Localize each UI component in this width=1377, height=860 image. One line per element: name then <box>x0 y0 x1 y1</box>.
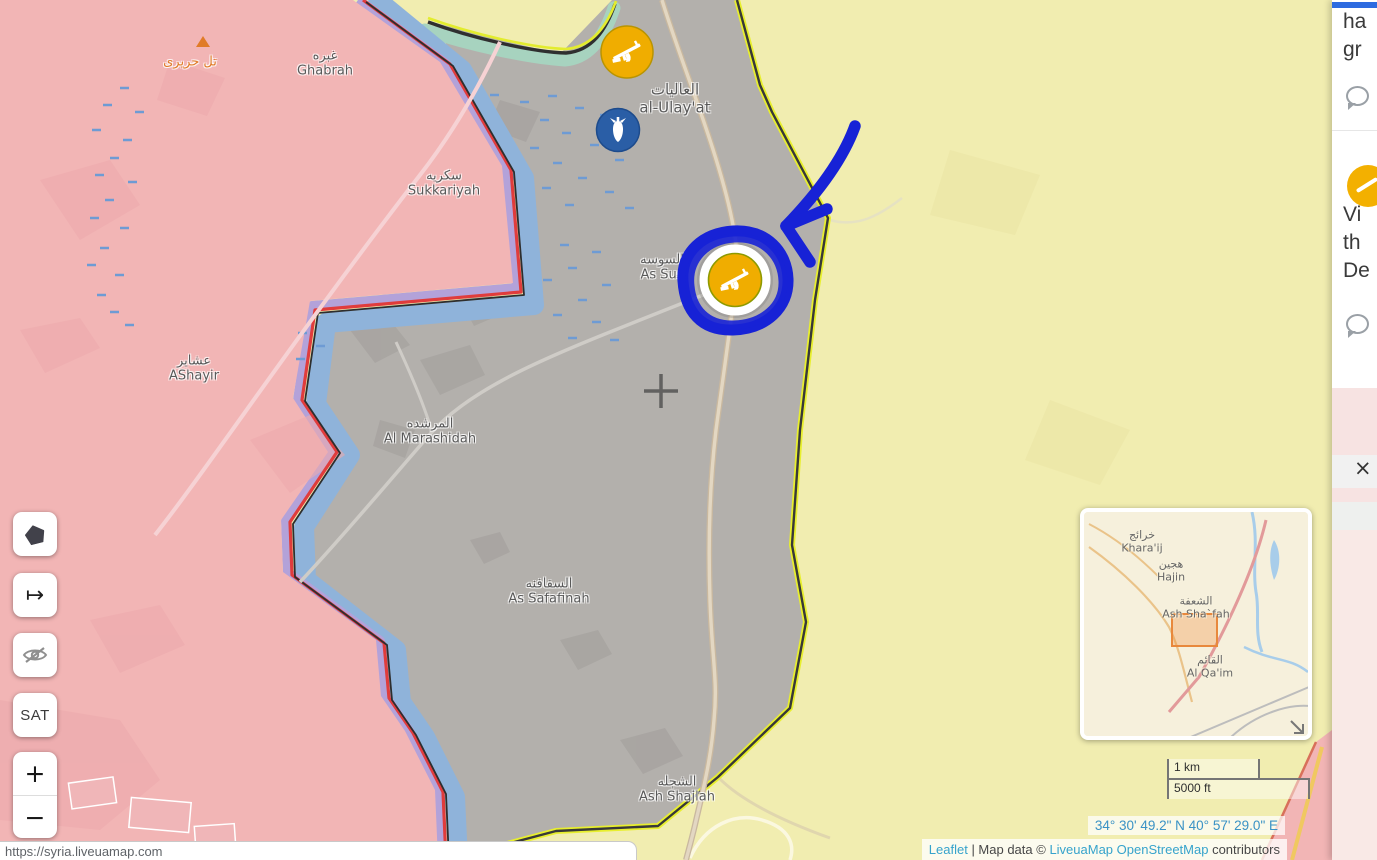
promo-block <box>1332 530 1377 860</box>
selected-rifle-marker[interactable] <box>699 244 771 316</box>
zoom-out-button[interactable]: − <box>13 796 57 838</box>
minimap[interactable]: خرائجKhara'ij هجينHajin الشعفةAsh Sha`fa… <box>1080 508 1312 740</box>
minimap-label-ashshafah: الشعفةAsh Sha`fah <box>1162 595 1230 620</box>
rifle-marker[interactable] <box>601 26 653 78</box>
jump-to-button[interactable]: ↦ <box>13 573 57 617</box>
map-viewport[interactable]: تل حريرى غبرهGhabrah سكريهSukkariyah عشا… <box>0 0 1332 860</box>
news-item-text[interactable]: ha <box>1343 10 1366 34</box>
draw-area-button[interactable] <box>13 512 57 556</box>
comment-bubble-icon[interactable] <box>1346 86 1369 106</box>
osm-link[interactable]: OpenStreetMap <box>1117 842 1209 857</box>
leaflet-link[interactable]: Leaflet <box>929 842 968 857</box>
pentagon-icon <box>23 522 47 545</box>
minimap-label-kharaij: خرائجKhara'ij <box>1121 529 1162 554</box>
status-url-tooltip: https://syria.liveuamap.com <box>0 841 637 860</box>
promo-block <box>1332 488 1377 502</box>
panel-accent-bar <box>1332 2 1377 8</box>
mouse-coordinates: 34° 30' 49.2" N 40° 57' 29.0" E <box>1088 816 1285 835</box>
arrow-from-bar-icon: ↦ <box>26 583 44 608</box>
eye-slash-icon <box>21 643 49 667</box>
scale-control: 1 km 5000 ft <box>1167 759 1310 799</box>
promo-block <box>1332 388 1377 455</box>
satellite-toggle-button[interactable]: SAT <box>13 693 57 737</box>
minimap-label-hajin: هجينHajin <box>1157 558 1185 583</box>
liveuamap-link[interactable]: LiveuaMap <box>1049 842 1113 857</box>
comment-bubble-icon[interactable] <box>1346 314 1369 334</box>
news-item-text[interactable]: De <box>1343 259 1370 283</box>
news-feed-panel: ha gr Vi th De × <box>1332 0 1377 860</box>
scale-km: 1 km <box>1167 759 1260 780</box>
close-icon[interactable]: × <box>1354 456 1372 480</box>
promo-block <box>1332 502 1377 530</box>
scale-ft: 5000 ft <box>1167 778 1310 799</box>
news-item-text[interactable]: th <box>1343 231 1361 255</box>
airstrike-marker[interactable] <box>597 109 640 152</box>
news-item-text[interactable]: Vi <box>1343 203 1361 227</box>
minimap-label-alqaim: القائمAl Qa'im <box>1187 654 1233 679</box>
panel-divider <box>1332 130 1377 131</box>
attribution-bar: Leaflet | Map data © LiveuaMap OpenStree… <box>922 839 1287 860</box>
minimap-canvas <box>1084 512 1308 736</box>
zoom-in-button[interactable]: + <box>13 752 57 795</box>
map-center-crosshair-icon <box>644 374 678 408</box>
rifle-marker-icon <box>1347 165 1377 207</box>
hide-markers-button[interactable] <box>13 633 57 677</box>
zoom-control: + − <box>13 752 57 838</box>
news-item-text[interactable]: gr <box>1343 38 1362 62</box>
